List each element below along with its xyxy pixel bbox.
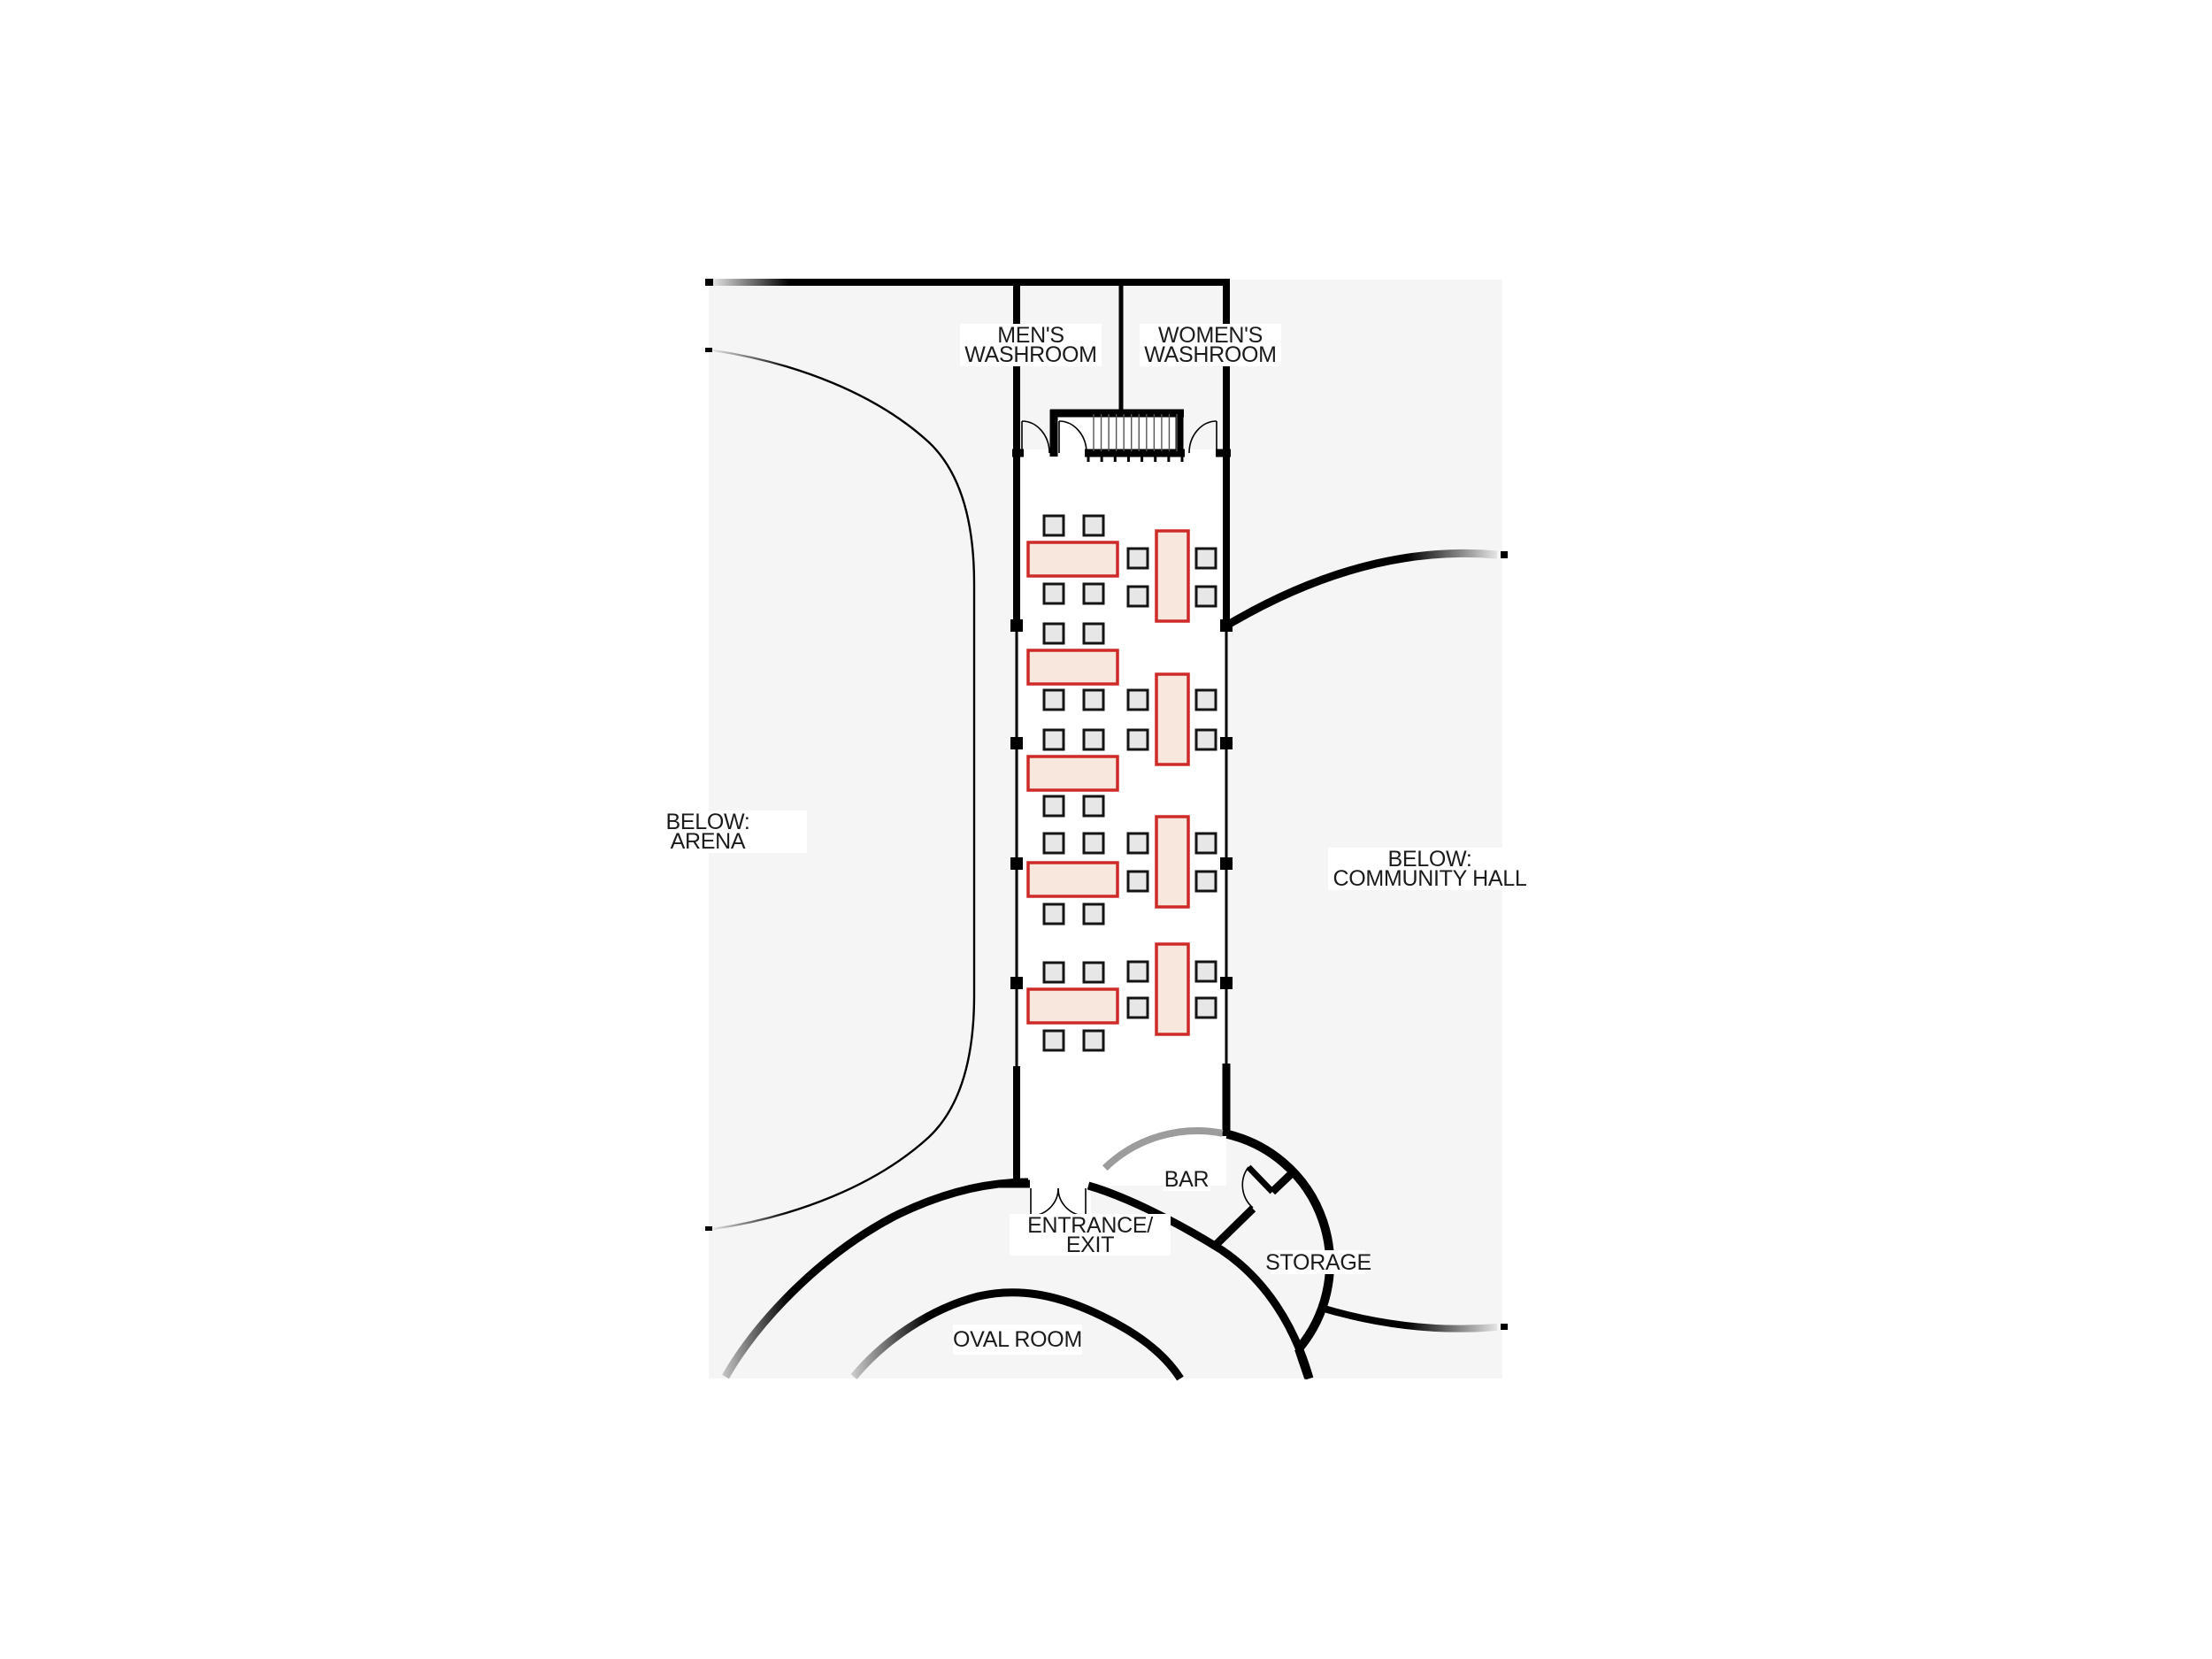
- chair: [1128, 690, 1148, 710]
- chair: [1044, 584, 1064, 603]
- label-bar: BAR: [1163, 1168, 1210, 1191]
- dining-table-vertical: [1156, 944, 1188, 1034]
- floor-plan-drawing: [0, 0, 2212, 1659]
- chair: [1196, 962, 1216, 981]
- chair: [1128, 998, 1148, 1018]
- wall-column-marker: [1220, 977, 1233, 989]
- label-mens-washroom: MEN'S WASHROOM: [960, 324, 1102, 366]
- dining-table-vertical: [1156, 674, 1188, 764]
- chair: [1044, 796, 1064, 816]
- dining-table-horizontal: [1028, 757, 1118, 790]
- chair: [1084, 904, 1103, 924]
- arena-line-dash-top: [705, 348, 712, 352]
- wall-column-marker: [1010, 857, 1023, 870]
- mens-washroom-door-arc: [1022, 421, 1049, 453]
- chair: [1128, 872, 1148, 891]
- storage-right-arc: [1321, 1308, 1497, 1329]
- arena-line-dash-bottom: [705, 1226, 712, 1231]
- dining-table-horizontal: [1028, 863, 1118, 896]
- label-womens-washroom: WOMEN'S WASHROOM: [1140, 324, 1281, 366]
- dining-table-horizontal: [1028, 542, 1118, 576]
- chair: [1084, 624, 1103, 643]
- label-line: OVAL ROOM: [953, 1330, 1082, 1349]
- chair: [1044, 904, 1064, 924]
- chair: [1196, 690, 1216, 710]
- arena-rink-arc: [713, 350, 974, 1229]
- community-hall-outline: [1228, 551, 1508, 625]
- storage-wall-bottom-stub: [1299, 1348, 1309, 1378]
- label-line: EXIT: [1066, 1235, 1114, 1255]
- label-line: BAR: [1164, 1170, 1210, 1189]
- chair: [1044, 833, 1064, 853]
- wall-column-marker: [1010, 619, 1023, 632]
- storage-circle-wall: [1227, 1134, 1330, 1349]
- arena-outline: [705, 348, 974, 1231]
- bar-storage-divider-wall: [1214, 1209, 1253, 1247]
- label-below-arena: BELOW: ARENA: [665, 810, 807, 853]
- label-storage: STORAGE: [1271, 1250, 1365, 1274]
- label-entrance-exit: ENTRANCE/ EXIT: [1010, 1214, 1171, 1256]
- wall-column-marker: [1010, 977, 1023, 989]
- label-line: ARENA: [671, 832, 746, 851]
- chair: [1128, 587, 1148, 606]
- chair: [1084, 796, 1103, 816]
- community-hall-arc-end-dash: [1501, 551, 1508, 558]
- label-oval-room: OVAL ROOM: [953, 1325, 1082, 1355]
- chair: [1128, 962, 1148, 981]
- chair: [1196, 730, 1216, 749]
- chair: [1196, 872, 1216, 891]
- chair: [1044, 730, 1064, 749]
- label-text-block: BELOW: ARENA: [665, 812, 750, 851]
- wall-end-dash-top-left: [705, 279, 713, 286]
- community-hall-arc: [1228, 553, 1497, 625]
- chair: [1196, 549, 1216, 568]
- chair: [1084, 584, 1103, 603]
- chair: [1128, 833, 1148, 853]
- storage-right-arc-end-dash: [1501, 1324, 1508, 1330]
- label-below-community-hall: BELOW: COMMUNITY HALL: [1328, 848, 1532, 890]
- wall-column-marker: [1220, 619, 1233, 632]
- storage-door-leaf: [1248, 1167, 1272, 1192]
- chair: [1196, 587, 1216, 606]
- floor-plan-page: MEN'S WASHROOM WOMEN'S WASHROOM BELOW: A…: [0, 0, 2212, 1659]
- wall-column-marker: [1010, 737, 1023, 749]
- wall-column-marker: [1220, 737, 1233, 749]
- womens-washroom-door-arc: [1189, 421, 1217, 453]
- chair: [1044, 963, 1064, 982]
- chair: [1084, 1031, 1103, 1050]
- chair: [1196, 998, 1216, 1018]
- wall-column-marker: [1220, 857, 1233, 870]
- chair: [1128, 730, 1148, 749]
- chair: [1044, 1031, 1064, 1050]
- dining-table-horizontal: [1028, 650, 1118, 684]
- chair: [1084, 963, 1103, 982]
- chair: [1084, 833, 1103, 853]
- chair: [1084, 516, 1103, 535]
- label-line: STORAGE: [1265, 1253, 1371, 1272]
- dining-table-vertical: [1156, 531, 1188, 621]
- chair: [1084, 730, 1103, 749]
- dining-table-horizontal: [1028, 989, 1118, 1023]
- chair: [1044, 516, 1064, 535]
- label-line: WASHROOM: [964, 345, 1096, 365]
- storage-door-jamb-wall: [1272, 1174, 1291, 1192]
- dining-table-vertical: [1156, 817, 1188, 907]
- label-line: WASHROOM: [1144, 345, 1276, 365]
- chair: [1196, 833, 1216, 853]
- chair: [1128, 549, 1148, 568]
- chair: [1044, 624, 1064, 643]
- chair: [1044, 690, 1064, 710]
- label-line: COMMUNITY HALL: [1333, 869, 1527, 888]
- chair: [1084, 690, 1103, 710]
